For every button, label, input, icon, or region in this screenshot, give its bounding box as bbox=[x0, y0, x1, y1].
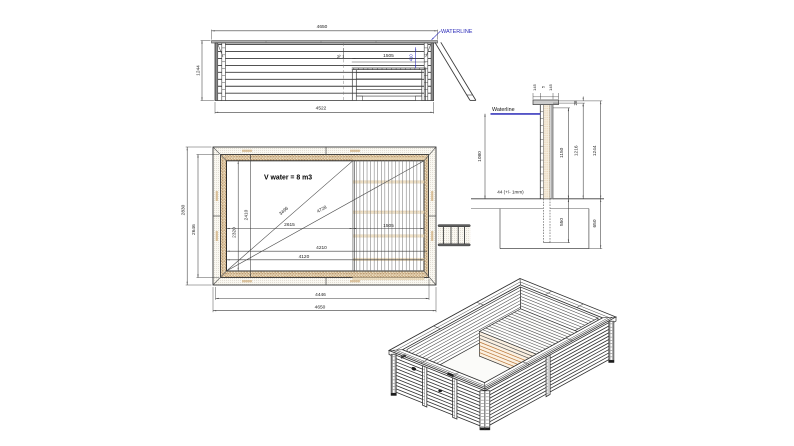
svg-text:4446: 4446 bbox=[315, 292, 326, 298]
svg-text:4650: 4650 bbox=[317, 24, 328, 30]
svg-text:145: 145 bbox=[532, 83, 537, 90]
svg-text:1505: 1505 bbox=[383, 223, 394, 229]
svg-text:5: 5 bbox=[541, 85, 546, 88]
svg-text:4210: 4210 bbox=[316, 245, 327, 251]
svg-text:2646: 2646 bbox=[191, 224, 197, 235]
svg-text:4120: 4120 bbox=[299, 254, 310, 260]
svg-text:2410: 2410 bbox=[244, 209, 250, 220]
svg-text:1244: 1244 bbox=[592, 145, 598, 156]
svg-text:76: 76 bbox=[337, 54, 342, 59]
svg-text:2615: 2615 bbox=[284, 222, 295, 228]
svg-text:145: 145 bbox=[548, 83, 553, 90]
svg-text:WATERLINE: WATERLINE bbox=[441, 29, 473, 35]
svg-text:4650: 4650 bbox=[315, 304, 326, 310]
svg-text:1505: 1505 bbox=[383, 53, 394, 59]
svg-text:V water = 8 m3: V water = 8 m3 bbox=[264, 175, 312, 182]
svg-text:4522: 4522 bbox=[316, 106, 327, 112]
svg-text:1080: 1080 bbox=[477, 151, 483, 162]
svg-text:1244: 1244 bbox=[195, 65, 201, 76]
svg-text:4728: 4728 bbox=[316, 204, 328, 214]
svg-text:2320: 2320 bbox=[231, 227, 237, 238]
svg-text:410: 410 bbox=[409, 54, 414, 62]
svg-text:1150: 1150 bbox=[559, 147, 565, 158]
svg-text:28: 28 bbox=[573, 100, 578, 105]
svg-text:1216: 1216 bbox=[574, 145, 580, 156]
svg-text:3496: 3496 bbox=[278, 205, 289, 216]
svg-text:650: 650 bbox=[592, 219, 598, 227]
svg-text:44 (+/- 1mm): 44 (+/- 1mm) bbox=[497, 190, 524, 195]
svg-text:2830: 2830 bbox=[180, 204, 186, 215]
svg-text:Waterline: Waterline bbox=[492, 107, 515, 113]
svg-text:550: 550 bbox=[559, 218, 565, 226]
